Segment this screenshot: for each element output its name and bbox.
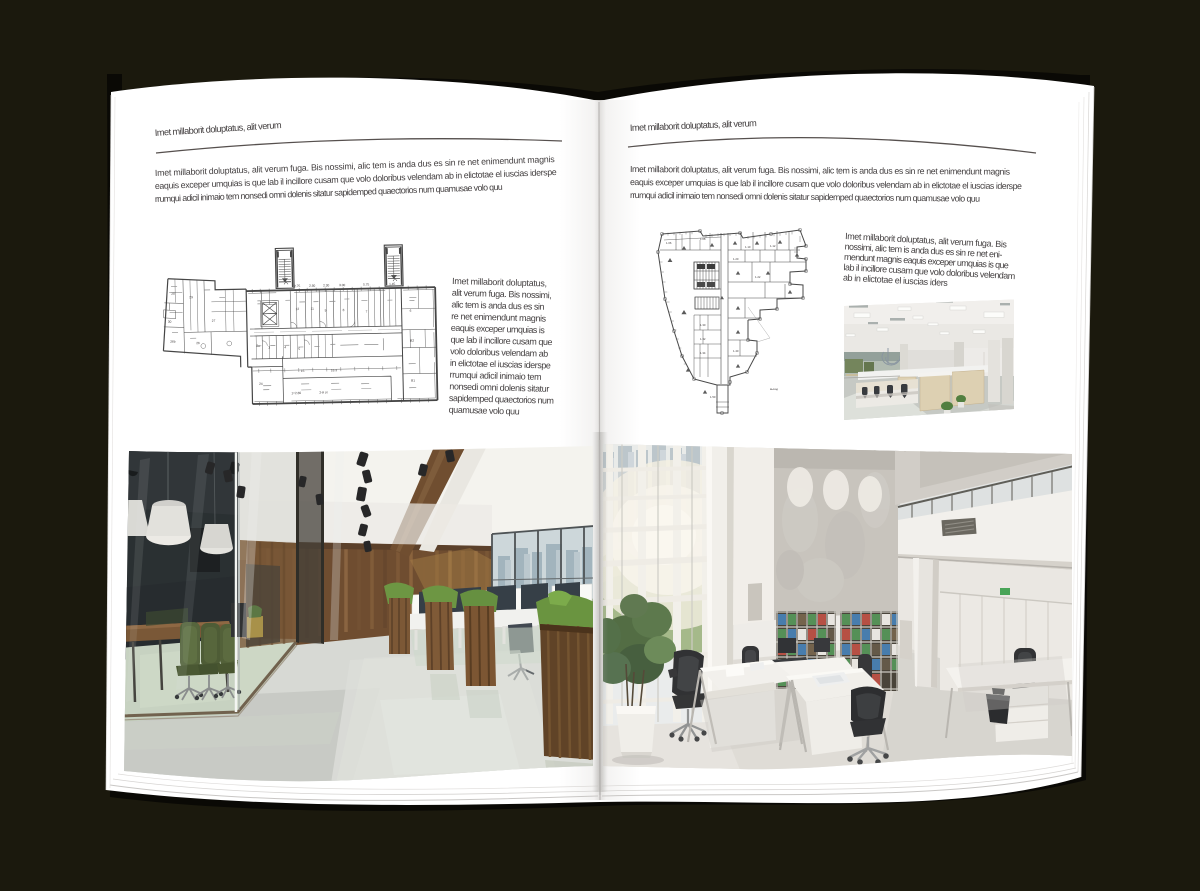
svg-text:9: 9	[325, 308, 327, 312]
svg-text:quamusae volo quu: quamusae volo quu	[449, 405, 520, 417]
svg-text:27: 27	[212, 319, 216, 323]
svg-text:16.3: 16.3	[331, 368, 338, 372]
svg-text:11: 11	[311, 307, 315, 311]
svg-text:5: 5	[298, 347, 300, 351]
svg-text:30: 30	[168, 320, 172, 324]
svg-text:1.30: 1.30	[700, 323, 706, 327]
svg-text:2.80: 2.80	[309, 284, 316, 288]
svg-text:1.40: 1.40	[733, 349, 739, 353]
svg-text:28: 28	[171, 292, 175, 296]
svg-text:3.00: 3.00	[339, 283, 346, 287]
svg-text:7: 7	[366, 310, 368, 314]
svg-text:1.06: 1.06	[666, 241, 672, 245]
svg-text:5.75: 5.75	[363, 283, 370, 287]
svg-text:26: 26	[196, 341, 200, 345]
svg-text:8: 8	[343, 308, 345, 312]
svg-text:1.32: 1.32	[700, 337, 706, 341]
svg-text:1.45: 1.45	[389, 282, 396, 286]
svg-text:26b: 26b	[170, 340, 176, 344]
svg-text:1.34: 1.34	[700, 351, 706, 355]
svg-text:2.30: 2.30	[323, 283, 330, 287]
svg-text:2-й эт: 2-й эт	[319, 390, 328, 394]
svg-text:1.20: 1.20	[733, 257, 739, 261]
svg-text:2.75: 2.75	[294, 284, 301, 288]
svg-text:29: 29	[189, 295, 193, 299]
svg-text:1=2.80: 1=2.80	[291, 391, 301, 395]
svg-text:1.50: 1.50	[710, 395, 716, 399]
svg-text:1.10: 1.10	[745, 245, 751, 249]
svg-text:12: 12	[296, 307, 300, 311]
svg-text:B2: B2	[410, 339, 414, 343]
svg-text:1.12: 1.12	[770, 244, 776, 248]
svg-text:4: 4	[284, 345, 286, 349]
svg-text:24: 24	[259, 382, 263, 386]
svg-text:1.22: 1.22	[755, 275, 761, 279]
svg-text:15: 15	[301, 369, 305, 373]
svg-text:1.08: 1.08	[700, 237, 706, 241]
svg-text:выход: выход	[770, 387, 778, 391]
svg-text:6: 6	[410, 309, 412, 313]
svg-text:B1: B1	[411, 379, 415, 383]
